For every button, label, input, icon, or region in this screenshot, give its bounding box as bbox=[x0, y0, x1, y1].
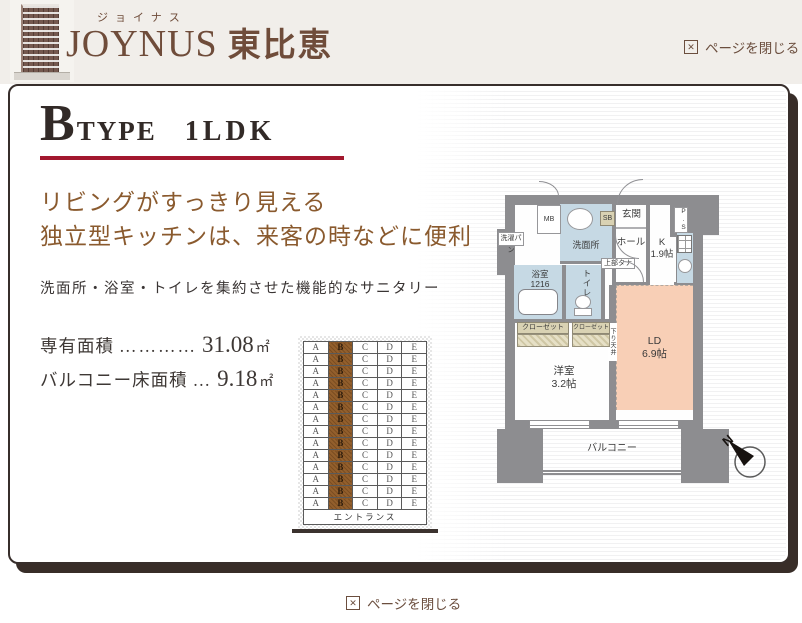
bathtub-icon bbox=[518, 289, 558, 315]
unit-grid-cell: E bbox=[402, 474, 427, 486]
ld-window bbox=[618, 420, 679, 429]
spec-unit: ㎡ bbox=[256, 337, 270, 357]
unit-grid-cell: A bbox=[304, 354, 329, 366]
site-title-en: JOYNUS bbox=[66, 23, 218, 65]
mb-door-arc bbox=[539, 181, 559, 196]
unit-grid-cell: C bbox=[353, 390, 378, 402]
entrance-label: エントランス bbox=[304, 510, 427, 525]
unit-grid-row: ABCDE bbox=[304, 474, 427, 486]
spec-label: 専有面積 bbox=[40, 333, 114, 358]
unit-grid-row: ABCDE bbox=[304, 438, 427, 450]
unit-grid-cell: A bbox=[304, 402, 329, 414]
unit-grid-cell: A bbox=[304, 426, 329, 438]
kitchen-name: K bbox=[645, 237, 679, 249]
unit-grid-cell: C bbox=[353, 498, 378, 510]
unit-grid-cell: E bbox=[402, 390, 427, 402]
bathroom-size: 1216 bbox=[519, 279, 561, 289]
unit-grid-cell: B bbox=[328, 378, 353, 390]
unit-grid-cell: C bbox=[353, 342, 378, 354]
page: ジョイナス JOYNUS東比恵 ✕ ページを閉じる B TYPE 1LDK リビ… bbox=[0, 0, 802, 623]
unit-grid-cell: A bbox=[304, 390, 329, 402]
close-page-link-top[interactable]: ✕ ページを閉じる bbox=[684, 37, 799, 57]
closet-left-label: クローゼット bbox=[517, 322, 569, 334]
pipe-space: P.S bbox=[674, 207, 688, 233]
unit-grid-cell: C bbox=[353, 450, 378, 462]
spec-value: 31.08 bbox=[202, 332, 254, 358]
close-icon: ✕ bbox=[684, 40, 698, 54]
closet-right-label: クローゼット bbox=[572, 322, 610, 334]
unit-grid-cell: C bbox=[353, 414, 378, 426]
unit-grid-row: ABCDE bbox=[304, 366, 427, 378]
unit-grid-cell: E bbox=[402, 378, 427, 390]
building-base-image bbox=[14, 72, 70, 80]
balcony-label: バルコニー bbox=[543, 443, 681, 455]
unit-grid-cell: E bbox=[402, 426, 427, 438]
unit-grid-cell: E bbox=[402, 354, 427, 366]
unit-grid-cell: D bbox=[377, 366, 402, 378]
unit-grid-cell: D bbox=[377, 390, 402, 402]
site-title: JOYNUS東比恵 bbox=[66, 18, 333, 66]
unit-grid-cell: E bbox=[402, 366, 427, 378]
unit-grid-cell: C bbox=[353, 438, 378, 450]
unit-grid-cell: E bbox=[402, 402, 427, 414]
living-dining-label: LD 6.9帖 bbox=[616, 335, 693, 361]
heading-underline bbox=[40, 156, 344, 160]
close-page-link-bottom[interactable]: ✕ ページを閉じる bbox=[346, 593, 461, 613]
unit-grid-cell: C bbox=[353, 462, 378, 474]
building-tower-image bbox=[21, 4, 59, 74]
spec-row-area: 専有面積 ………… 31.08 ㎡ bbox=[40, 332, 273, 366]
unit-grid-cell: A bbox=[304, 378, 329, 390]
unit-grid-row: ABCDE bbox=[304, 486, 427, 498]
spec-unit: ㎡ bbox=[259, 371, 273, 391]
unit-grid-cell: A bbox=[304, 498, 329, 510]
type-word: TYPE bbox=[77, 116, 157, 147]
bedroom-label: 洋室 3.2帖 bbox=[521, 365, 607, 391]
spec-leader-dots: … bbox=[193, 370, 213, 391]
bedroom-window bbox=[529, 420, 590, 429]
unit-grid-row: ABCDE bbox=[304, 462, 427, 474]
partition-toilet-right bbox=[601, 265, 605, 319]
type-heading: B TYPE 1LDK bbox=[40, 98, 275, 150]
spec-value: 9.18 bbox=[217, 366, 257, 392]
spec-list: 専有面積 ………… 31.08 ㎡ バルコニー床面積 … 9.18 ㎡ bbox=[40, 332, 273, 400]
spec-row-balcony: バルコニー床面積 … 9.18 ㎡ bbox=[40, 366, 273, 400]
unit-grid-row: ABCDE bbox=[304, 426, 427, 438]
bathroom-label: 浴室 1216 bbox=[519, 269, 561, 289]
unit-grid-table: ABCDEABCDEABCDEABCDEABCDEABCDEABCDEABCDE… bbox=[303, 341, 427, 525]
unit-grid-row: ABCDE bbox=[304, 342, 427, 354]
close-icon: ✕ bbox=[346, 596, 360, 610]
floorplan-card: B TYPE 1LDK リビングがすっきり見える 独立型キッチンは、来客の時など… bbox=[8, 84, 790, 564]
toilet-bowl-icon bbox=[575, 295, 591, 309]
site-title-ja: 東比恵 bbox=[228, 28, 333, 64]
unit-grid-row: ABCDE bbox=[304, 390, 427, 402]
unit-grid-cell: B bbox=[328, 498, 353, 510]
kitchen-label: K 1.9帖 bbox=[645, 237, 679, 261]
unit-grid-cell: A bbox=[304, 486, 329, 498]
unit-grid-cell: E bbox=[402, 342, 427, 354]
floorplan-drawing: 洗面所 MB 洗濯パン 浴室 1216 トイレ SB 玄関 ホール K 1.9帖 bbox=[497, 177, 749, 493]
unit-grid-cell: B bbox=[328, 474, 353, 486]
entrance-label: 玄関 bbox=[616, 209, 647, 221]
ld-name: LD bbox=[616, 335, 693, 348]
unit-grid-cell: C bbox=[353, 402, 378, 414]
wall-bottom-seg1 bbox=[505, 420, 531, 429]
unit-grid-cell: D bbox=[377, 414, 402, 426]
bedroom-name: 洋室 bbox=[521, 365, 607, 378]
building-position-grid: ABCDEABCDEABCDEABCDEABCDEABCDEABCDEABCDE… bbox=[298, 336, 432, 530]
unit-grid-cell: B bbox=[328, 426, 353, 438]
laundry-pan-label: 洗濯パン bbox=[498, 232, 524, 246]
unit-grid-cell: C bbox=[353, 378, 378, 390]
unit-grid-cell: C bbox=[353, 426, 378, 438]
bedroom-size: 3.2帖 bbox=[521, 378, 607, 391]
unit-grid-cell: E bbox=[402, 498, 427, 510]
entrance-step-line bbox=[616, 227, 646, 229]
unit-grid-cell: D bbox=[377, 402, 402, 414]
closet-right-body bbox=[572, 334, 610, 347]
spec-leader-dots: ………… bbox=[119, 336, 197, 357]
unit-grid-row: ABCDE bbox=[304, 354, 427, 366]
unit-grid-cell: D bbox=[377, 450, 402, 462]
unit-grid-cell: E bbox=[402, 462, 427, 474]
catch-copy-line2: 独立型キッチンは、来客の時などに便利 bbox=[40, 220, 472, 254]
unit-grid-body: ABCDEABCDEABCDEABCDEABCDEABCDEABCDEABCDE… bbox=[304, 342, 427, 525]
unit-grid-cell: D bbox=[377, 498, 402, 510]
unit-grid-cell: B bbox=[328, 390, 353, 402]
spec-label: バルコニー床面積 bbox=[40, 367, 188, 392]
unit-grid-cell: A bbox=[304, 474, 329, 486]
unit-grid-cell: D bbox=[377, 342, 402, 354]
unit-grid-cell: D bbox=[377, 354, 402, 366]
unit-grid-entrance-row: エントランス bbox=[304, 510, 427, 525]
unit-grid-cell: C bbox=[353, 354, 378, 366]
balcony-pillar-left bbox=[497, 429, 543, 483]
unit-grid-cell: A bbox=[304, 342, 329, 354]
unit-grid-cell: E bbox=[402, 438, 427, 450]
catch-copy-line1: リビングがすっきり見える bbox=[40, 186, 472, 220]
wall-top-right-block bbox=[693, 195, 719, 235]
unit-grid-cell: B bbox=[328, 342, 353, 354]
unit-grid-cell: A bbox=[304, 450, 329, 462]
unit-grid-cell: D bbox=[377, 438, 402, 450]
type-letter: B bbox=[40, 98, 75, 150]
unit-grid-cell: D bbox=[377, 426, 402, 438]
meter-box: MB bbox=[537, 205, 561, 234]
unit-grid-cell: A bbox=[304, 462, 329, 474]
stove-icon bbox=[677, 235, 692, 253]
unit-grid-cell: E bbox=[402, 486, 427, 498]
shoe-box: SB bbox=[600, 211, 615, 226]
bathroom-name: 浴室 bbox=[519, 269, 561, 279]
unit-grid-cell: B bbox=[328, 402, 353, 414]
wall-bottom-seg3 bbox=[679, 420, 703, 429]
unit-grid-cell: B bbox=[328, 354, 353, 366]
unit-grid-cell: E bbox=[402, 450, 427, 462]
type-layout: 1LDK bbox=[185, 116, 276, 148]
unit-grid-cell: D bbox=[377, 462, 402, 474]
compass: N bbox=[720, 430, 774, 484]
compass-icon: N bbox=[720, 430, 774, 484]
unit-grid-row: ABCDE bbox=[304, 414, 427, 426]
washroom-label: 洗面所 bbox=[561, 239, 611, 251]
washbasin-icon bbox=[567, 208, 593, 230]
unit-grid-cell: A bbox=[304, 438, 329, 450]
kitchen-size: 1.9帖 bbox=[645, 249, 679, 261]
closet-left-body bbox=[517, 334, 569, 347]
sub-copy: 洗面所・浴室・トイレを集約させた機能的なサニタリー bbox=[40, 277, 440, 298]
toilet-tank-icon bbox=[574, 308, 592, 316]
unit-grid-cell: C bbox=[353, 366, 378, 378]
close-label: ページを閉じる bbox=[367, 593, 461, 613]
unit-grid-cell: C bbox=[353, 486, 378, 498]
catch-copy: リビングがすっきり見える 独立型キッチンは、来客の時などに便利 bbox=[40, 186, 472, 254]
kitchen-sink-icon bbox=[678, 259, 692, 273]
unit-grid-cell: D bbox=[377, 378, 402, 390]
unit-grid-cell: D bbox=[377, 486, 402, 498]
unit-grid-cell: B bbox=[328, 414, 353, 426]
unit-grid-cell: B bbox=[328, 462, 353, 474]
unit-grid-row: ABCDE bbox=[304, 378, 427, 390]
wall-bottom-seg2 bbox=[590, 420, 619, 429]
unit-grid-cell: B bbox=[328, 486, 353, 498]
unit-grid-cell: E bbox=[402, 414, 427, 426]
unit-grid-row: ABCDE bbox=[304, 450, 427, 462]
unit-grid-cell: A bbox=[304, 366, 329, 378]
unit-grid-cell: B bbox=[328, 438, 353, 450]
unit-grid-cell: A bbox=[304, 414, 329, 426]
unit-grid-cell: C bbox=[353, 474, 378, 486]
unit-grid-cell: D bbox=[377, 474, 402, 486]
building-photo bbox=[10, 0, 74, 82]
unit-grid-cell: B bbox=[328, 450, 353, 462]
building-ground-line bbox=[292, 529, 438, 533]
ld-size: 6.9帖 bbox=[616, 348, 693, 361]
unit-grid-cell: B bbox=[328, 366, 353, 378]
entrance-door-arc bbox=[617, 179, 643, 204]
unit-grid-row: ABCDE bbox=[304, 402, 427, 414]
close-label: ページを閉じる bbox=[705, 37, 799, 57]
unit-grid-row: ABCDE bbox=[304, 498, 427, 510]
